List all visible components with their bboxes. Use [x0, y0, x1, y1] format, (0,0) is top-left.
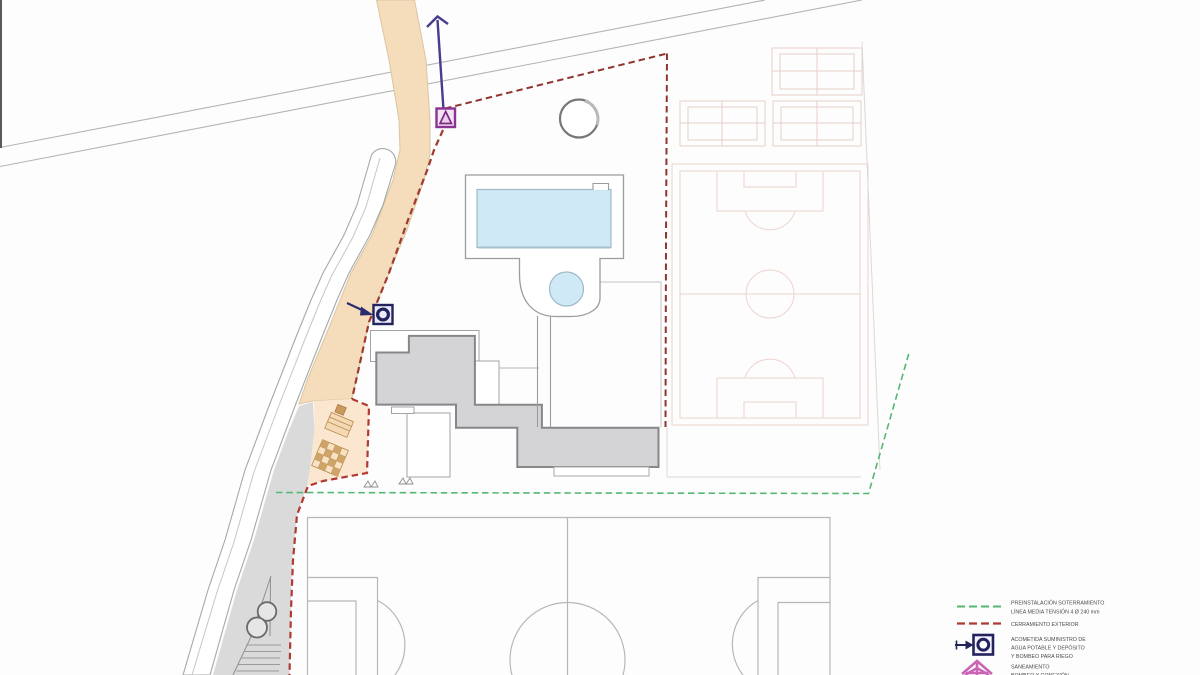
svg-text:SANEAMIENTO: SANEAMIENTO	[1011, 665, 1049, 671]
svg-text:Y BOMBEO PARA RIEGO: Y BOMBEO PARA RIEGO	[1011, 654, 1073, 660]
svg-text:PREINSTALACIÓN SOTERRAMIENTO: PREINSTALACIÓN SOTERRAMIENTO	[1011, 600, 1104, 607]
svg-text:ACOMETIDA SUMINISTRO DE: ACOMETIDA SUMINISTRO DE	[1011, 637, 1086, 643]
svg-text:CERRAMIENTO EXTERIOR: CERRAMIENTO EXTERIOR	[1011, 622, 1079, 628]
svg-text:LÍNEA MEDIA TENSIÓN 4 Ø 240 mm: LÍNEA MEDIA TENSIÓN 4 Ø 240 mm	[1011, 609, 1100, 616]
svg-text:AGUA POTABLE Y DEPÓSITO: AGUA POTABLE Y DEPÓSITO	[1011, 645, 1085, 652]
